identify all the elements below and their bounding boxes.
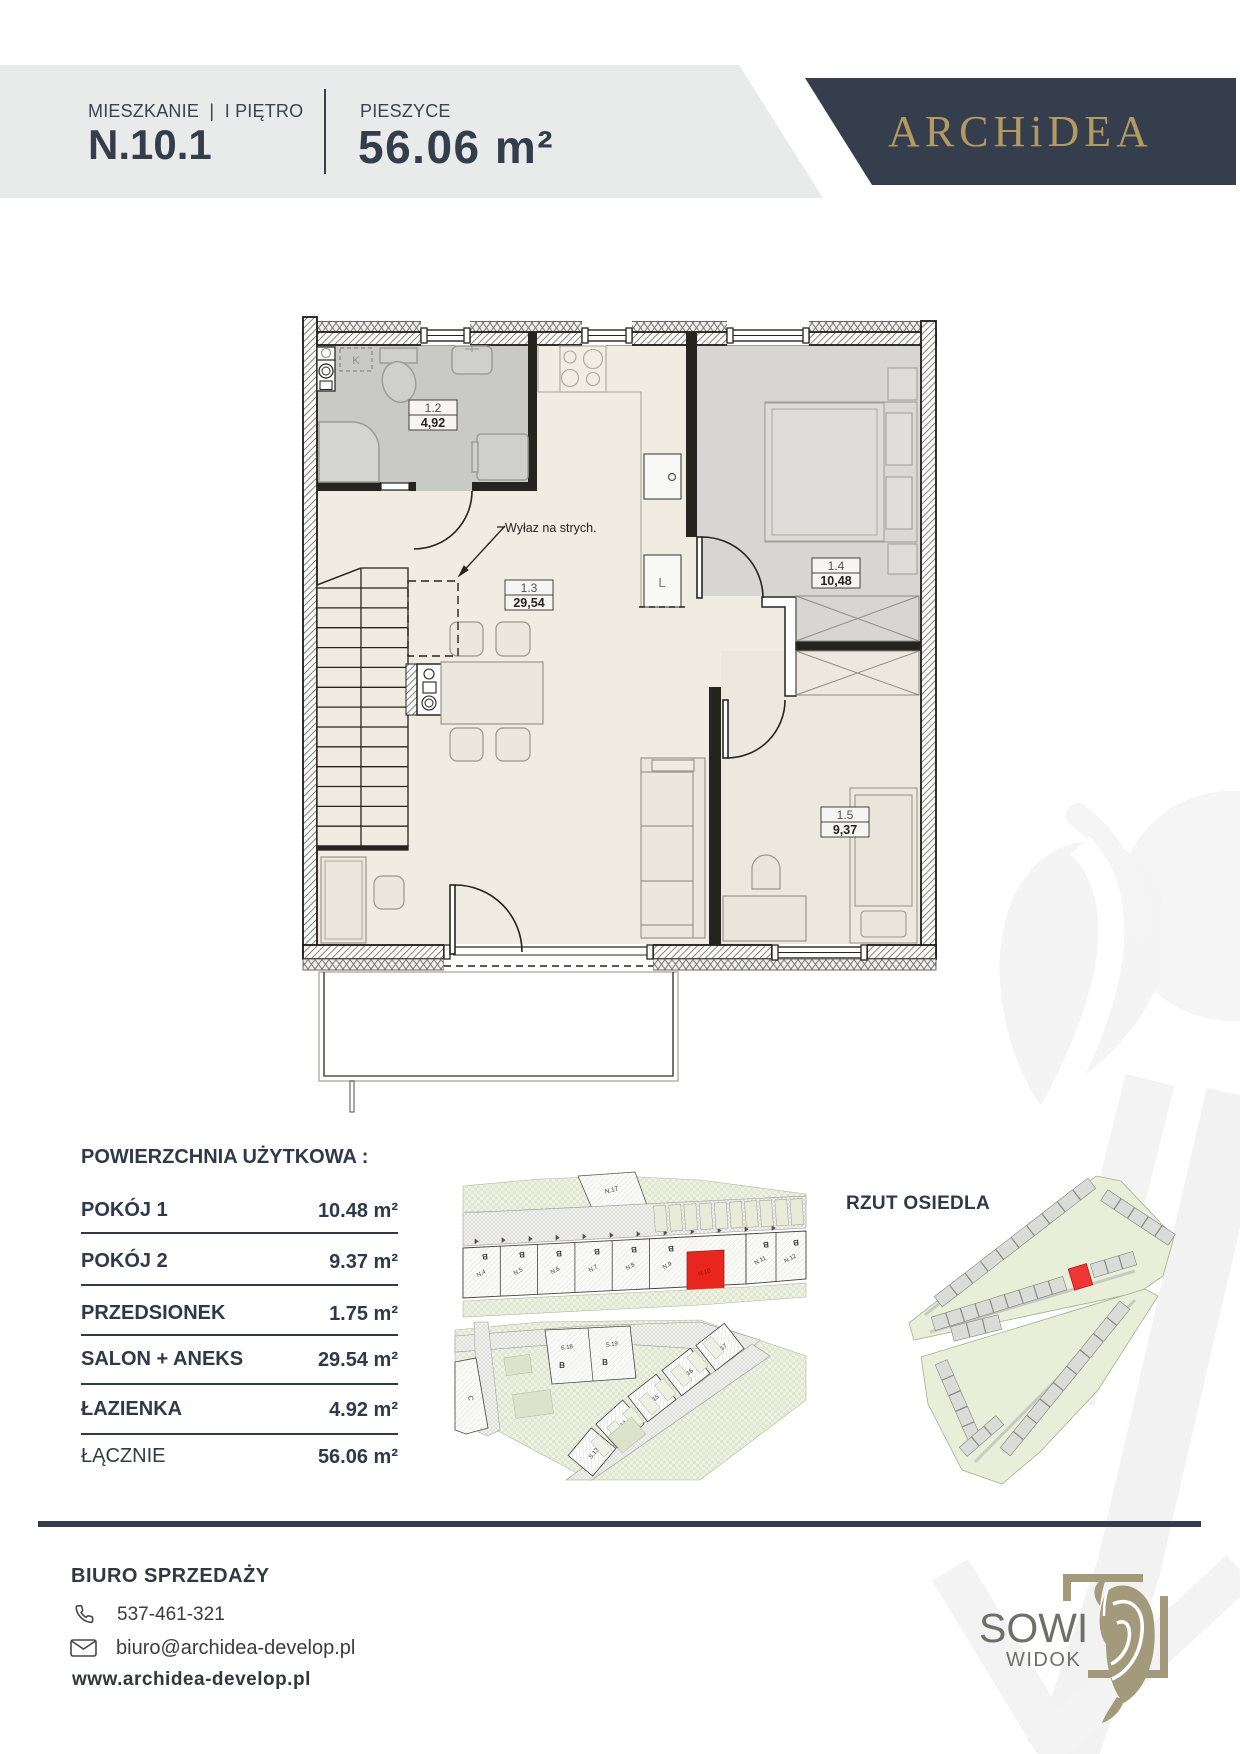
svg-text:WIDOK: WIDOK — [1006, 1649, 1081, 1671]
svg-text:B: B — [594, 1247, 601, 1256]
svg-text:B: B — [602, 1358, 608, 1367]
svg-text:B: B — [763, 1240, 770, 1249]
svg-text:B: B — [482, 1252, 489, 1261]
svg-text:SOWI: SOWI — [979, 1605, 1088, 1651]
svg-text:1.5: 1.5 — [837, 808, 854, 822]
svg-text:B: B — [556, 1249, 563, 1258]
svg-text:B: B — [519, 1250, 526, 1259]
svg-text:10,48: 10,48 — [820, 574, 851, 588]
svg-text:B: B — [668, 1244, 675, 1253]
svg-text:29,54: 29,54 — [513, 596, 544, 610]
svg-text:1.3: 1.3 — [521, 581, 538, 595]
svg-text:B: B — [559, 1361, 565, 1370]
svg-text:L: L — [658, 575, 665, 590]
svg-text:Wyłaz na strych.: Wyłaz na strych. — [505, 521, 597, 535]
svg-text:B: B — [631, 1245, 638, 1254]
svg-text:1.2: 1.2 — [425, 401, 442, 415]
svg-text:K: K — [352, 355, 360, 367]
svg-text:B: B — [793, 1238, 800, 1247]
svg-text:4,92: 4,92 — [421, 416, 445, 430]
svg-text:9,37: 9,37 — [833, 823, 857, 837]
svg-text:1.4: 1.4 — [828, 559, 845, 573]
